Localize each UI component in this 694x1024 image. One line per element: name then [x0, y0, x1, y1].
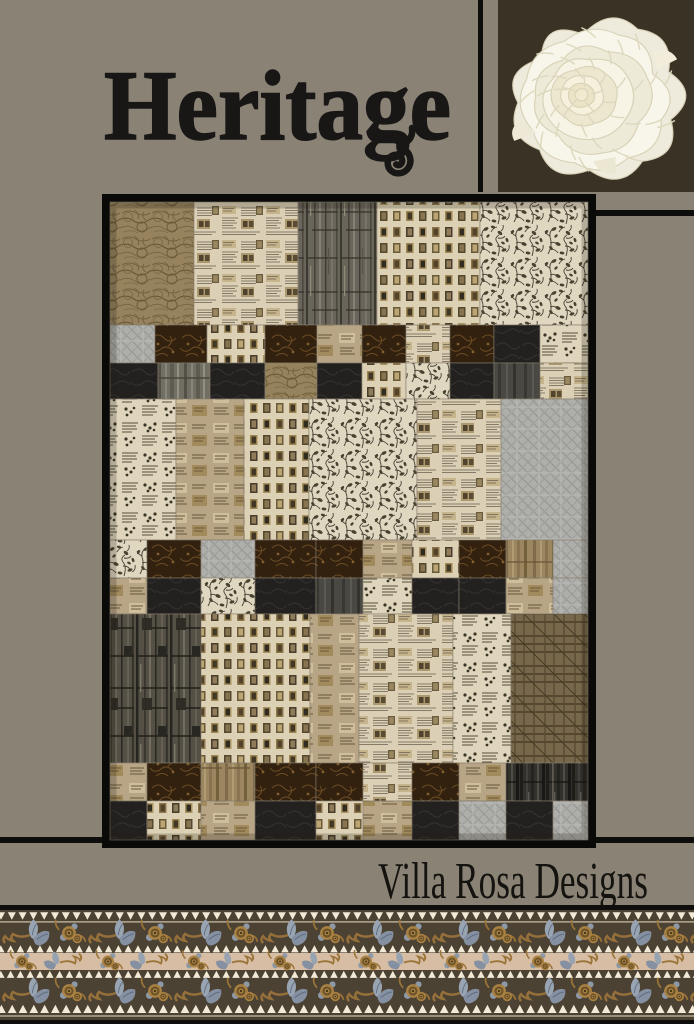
svg-text:Villa Rosa Designs: Villa Rosa Designs	[378, 853, 648, 910]
